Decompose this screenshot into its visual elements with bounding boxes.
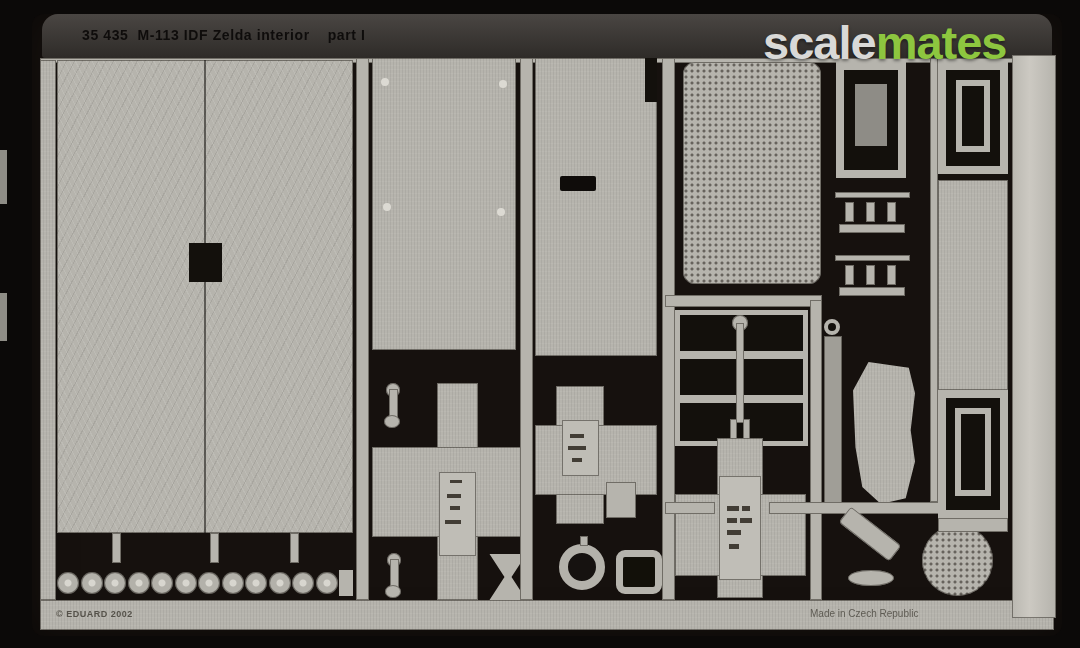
sprue-rail <box>662 58 675 600</box>
sprue-rail <box>356 58 369 600</box>
photo-clamp-lower <box>0 293 7 341</box>
fret-title-text: 35 435 M-113 IDF Zelda interior part I <box>82 27 366 43</box>
disc-part <box>245 572 267 594</box>
made-in-text: Made in Czech Republic <box>810 608 918 619</box>
boot-shaped-part <box>820 518 910 596</box>
gray-window <box>855 84 887 146</box>
strip-ring-end <box>824 319 840 335</box>
panel-cutout-square <box>189 243 222 282</box>
disc-part <box>151 572 173 594</box>
panel-slot <box>560 176 596 191</box>
large-disc-part <box>922 525 993 596</box>
disc-part <box>81 572 103 594</box>
wheel-cap-disc-row <box>57 563 349 603</box>
panel-divider-line <box>204 60 206 533</box>
anti-slip-floor-panel <box>57 60 353 533</box>
disc-part <box>222 572 244 594</box>
disc-part <box>198 572 220 594</box>
sprue-rail <box>665 502 715 514</box>
connector-tab <box>938 518 1008 532</box>
panel-hole <box>381 78 389 86</box>
right-margin-strip <box>1012 55 1056 618</box>
frame-with-window <box>836 62 906 178</box>
disc-part <box>128 572 150 594</box>
connector-tab <box>112 533 121 563</box>
cross-bracket-c-etch-detail <box>719 476 761 580</box>
disc-part <box>292 572 314 594</box>
sprue-rail <box>520 58 533 600</box>
connector-tab <box>210 533 219 563</box>
panel-hole <box>383 203 391 211</box>
small-bracket-part <box>606 482 636 518</box>
dumbbell-part-lower <box>372 552 422 600</box>
panel-hole <box>497 208 505 216</box>
disc-row-end-tab <box>339 570 353 596</box>
textured-panel-a <box>372 58 516 350</box>
disc-part <box>175 572 197 594</box>
cross-bracket-b-etch-detail <box>562 420 599 476</box>
scalemates-watermark: scalemates <box>763 15 1006 70</box>
disc-part <box>269 572 291 594</box>
panel-hole <box>499 80 507 88</box>
dumbbell-part-upper <box>372 381 420 429</box>
ladder-bracket-2 <box>835 255 910 303</box>
sprue-rail <box>665 295 822 307</box>
photo-clamp-upper <box>0 150 7 204</box>
connector-tab <box>290 533 299 563</box>
disc-part <box>316 572 338 594</box>
bottom-frame-rail: © EDUARD 2002 Made in Czech Republic <box>40 600 1054 630</box>
hull-side-part <box>853 362 915 504</box>
textured-panel-b <box>535 58 657 356</box>
sprue-rail <box>930 58 938 502</box>
photoetch-fret: 35 435 M-113 IDF Zelda interior part I ©… <box>32 14 1062 636</box>
nested-frame-top <box>938 62 1008 174</box>
small-frame-part <box>616 550 662 594</box>
disc-part <box>57 572 79 594</box>
ladder-bracket-1 <box>835 192 910 240</box>
cross-bracket-a-etch-detail <box>439 472 476 556</box>
watermark-mates-text: mates <box>876 16 1007 69</box>
grid-frame-part <box>675 310 808 446</box>
disc-part <box>104 572 126 594</box>
connector-tab <box>580 536 588 546</box>
left-frame-rail <box>40 60 56 600</box>
perforated-panel <box>683 62 821 284</box>
photo-stage: 35 435 M-113 IDF Zelda interior part I ©… <box>0 0 1080 648</box>
nested-frame-bottom <box>938 390 1008 518</box>
tool-part-stem <box>736 323 744 423</box>
nested-frame-bottom-inner <box>955 408 991 496</box>
tall-blank-panel <box>938 180 1008 390</box>
ring-part <box>559 544 605 590</box>
nested-frame-top-inner <box>956 80 990 152</box>
panel-corner-notch <box>645 58 657 102</box>
long-strip-part <box>824 336 842 504</box>
copyright-text: © EDUARD 2002 <box>56 609 133 619</box>
watermark-scale-text: scale <box>763 16 876 69</box>
